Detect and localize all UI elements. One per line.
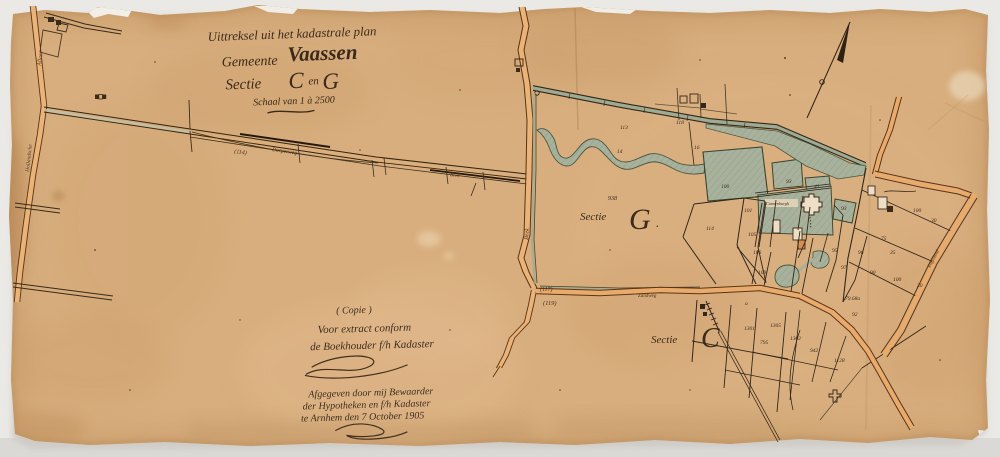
svg-text:.: .: [656, 215, 659, 230]
svg-text:Beek: Beek: [524, 228, 531, 240]
svg-text:(117): (117): [540, 286, 553, 293]
svg-text:en: en: [308, 75, 319, 87]
svg-text:1128: 1128: [834, 358, 845, 364]
svg-text:75: 75: [881, 236, 887, 242]
svg-text:G: G: [629, 203, 651, 236]
svg-text:100: 100: [721, 184, 730, 190]
svg-text:30: 30: [916, 283, 923, 289]
svg-text:Voor extract conform: Voor extract conform: [318, 322, 412, 336]
svg-text:35: 35: [889, 250, 896, 256]
svg-text:101: 101: [744, 208, 753, 214]
svg-text:109: 109: [758, 270, 767, 276]
svg-text:( Copie ): ( Copie ): [336, 305, 372, 317]
svg-text:41: 41: [814, 183, 820, 190]
svg-text:30: 30: [930, 218, 937, 224]
svg-text:Sectie: Sectie: [651, 334, 677, 346]
svg-text:97: 97: [841, 265, 847, 271]
svg-text:1305: 1305: [770, 323, 781, 329]
svg-text:Vaassen: Vaassen: [287, 40, 358, 66]
svg-text:118: 118: [676, 120, 684, 126]
svg-text:92: 92: [852, 312, 858, 318]
svg-text:114: 114: [706, 225, 714, 232]
svg-text:Zandweg: Zandweg: [638, 294, 657, 299]
svg-text:938: 938: [608, 196, 617, 202]
svg-text:105: 105: [748, 232, 757, 238]
svg-text:Sectie: Sectie: [225, 76, 262, 93]
svg-text:93: 93: [786, 179, 792, 185]
svg-text:G: G: [322, 68, 340, 94]
svg-text:(119): (119): [543, 300, 557, 307]
svg-text:1301: 1301: [744, 326, 755, 332]
svg-text:100: 100: [913, 208, 922, 214]
svg-text:Gemeente: Gemeente: [221, 54, 277, 71]
svg-text:Sectie: Sectie: [580, 211, 606, 223]
svg-text:95: 95: [832, 248, 838, 254]
svg-text:79.68a: 79.68a: [845, 296, 860, 302]
svg-text:100: 100: [893, 277, 902, 283]
svg-text:795: 795: [760, 340, 769, 346]
svg-text:942: 942: [810, 347, 819, 354]
svg-text:14: 14: [617, 148, 623, 155]
svg-text:Cannenburgh: Cannenburgh: [766, 201, 789, 206]
svg-text:90: 90: [870, 270, 876, 276]
svg-text:1302: 1302: [790, 336, 801, 342]
svg-text:C: C: [288, 68, 305, 94]
svg-text:93: 93: [841, 206, 847, 212]
svg-text:16: 16: [694, 145, 700, 151]
svg-text:106: 106: [753, 250, 762, 256]
svg-text:113: 113: [620, 125, 628, 131]
svg-text:a: a: [745, 301, 748, 307]
svg-text:96: 96: [858, 250, 864, 256]
